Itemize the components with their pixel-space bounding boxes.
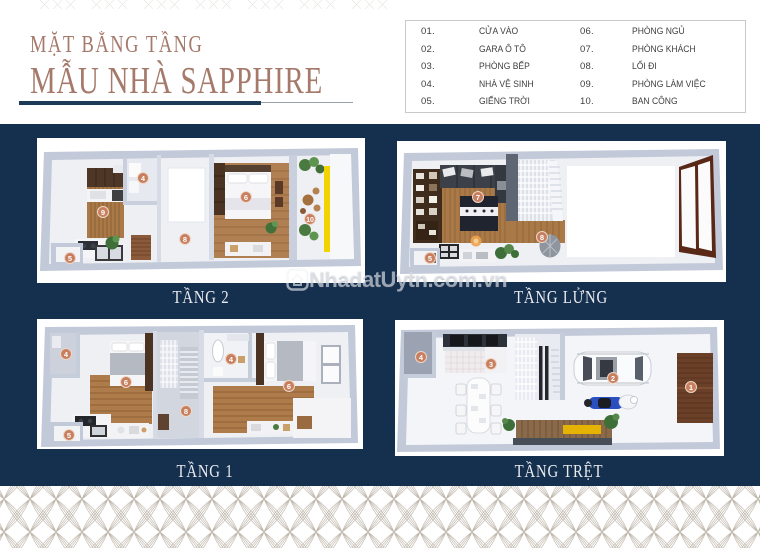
svg-text:9: 9: [101, 208, 105, 217]
svg-text:8: 8: [184, 407, 188, 416]
svg-text:5: 5: [67, 431, 71, 440]
svg-text:6: 6: [244, 193, 248, 202]
svg-text:3: 3: [489, 360, 493, 369]
svg-text:2: 2: [611, 374, 615, 383]
svg-text:8: 8: [183, 235, 187, 244]
svg-text:6: 6: [124, 378, 128, 387]
svg-text:6: 6: [287, 382, 291, 391]
svg-text:8: 8: [540, 233, 544, 242]
svg-text:5: 5: [428, 254, 432, 263]
svg-text:7: 7: [476, 193, 480, 202]
svg-text:10: 10: [306, 217, 314, 224]
svg-text:5: 5: [68, 254, 72, 263]
svg-text:1: 1: [689, 383, 693, 392]
